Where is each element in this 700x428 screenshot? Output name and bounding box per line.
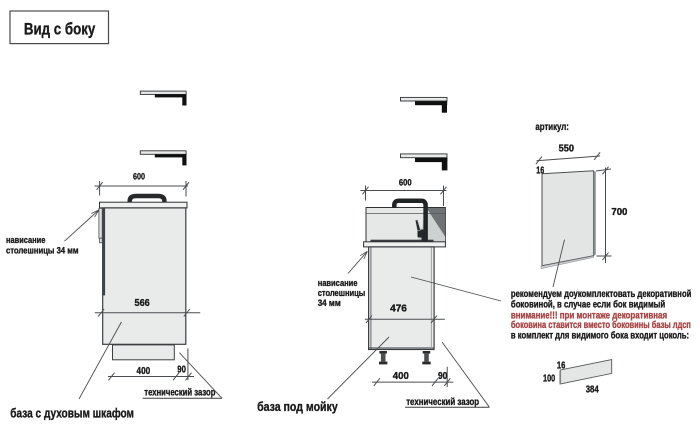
svg-text:100: 100 xyxy=(543,373,555,384)
svg-text:400: 400 xyxy=(137,366,151,377)
svg-text:боковина ставится вместо боков: боковина ставится вместо боковины базы л… xyxy=(511,319,691,331)
svg-text:600: 600 xyxy=(399,177,412,188)
svg-text:база под мойку: база под мойку xyxy=(257,399,338,414)
svg-text:600: 600 xyxy=(133,172,145,183)
svg-text:550: 550 xyxy=(559,143,574,154)
svg-text:700: 700 xyxy=(611,207,627,218)
svg-text:артикул:: артикул: xyxy=(535,121,569,133)
svg-text:476: 476 xyxy=(390,304,407,315)
svg-text:в комплект для видимого бока в: в комплект для видимого бока входит цоко… xyxy=(511,330,689,342)
svg-text:90: 90 xyxy=(438,371,447,382)
svg-text:566: 566 xyxy=(135,298,151,309)
svg-text:400: 400 xyxy=(393,371,409,382)
svg-text:технический зазор: технический зазор xyxy=(406,397,479,408)
svg-text:технический зазор: технический зазор xyxy=(144,387,215,398)
svg-text:рекомендуем доукомплектовать д: рекомендуем доукомплектовать декоративно… xyxy=(511,289,692,300)
svg-text:база с духовым шкафом: база с духовым шкафом xyxy=(10,406,134,421)
svg-text:столешницы 34 мм: столешницы 34 мм xyxy=(6,245,79,256)
svg-text:384: 384 xyxy=(586,384,599,395)
svg-text:Вид с боку: Вид с боку xyxy=(24,19,96,38)
svg-text:34 мм: 34 мм xyxy=(318,298,341,309)
svg-text:боковиной, в случае если бок в: боковиной, в случае если бок видимый xyxy=(511,299,665,311)
svg-text:нависание: нависание xyxy=(6,235,45,246)
svg-text:16: 16 xyxy=(557,360,566,371)
svg-text:90: 90 xyxy=(177,364,186,375)
